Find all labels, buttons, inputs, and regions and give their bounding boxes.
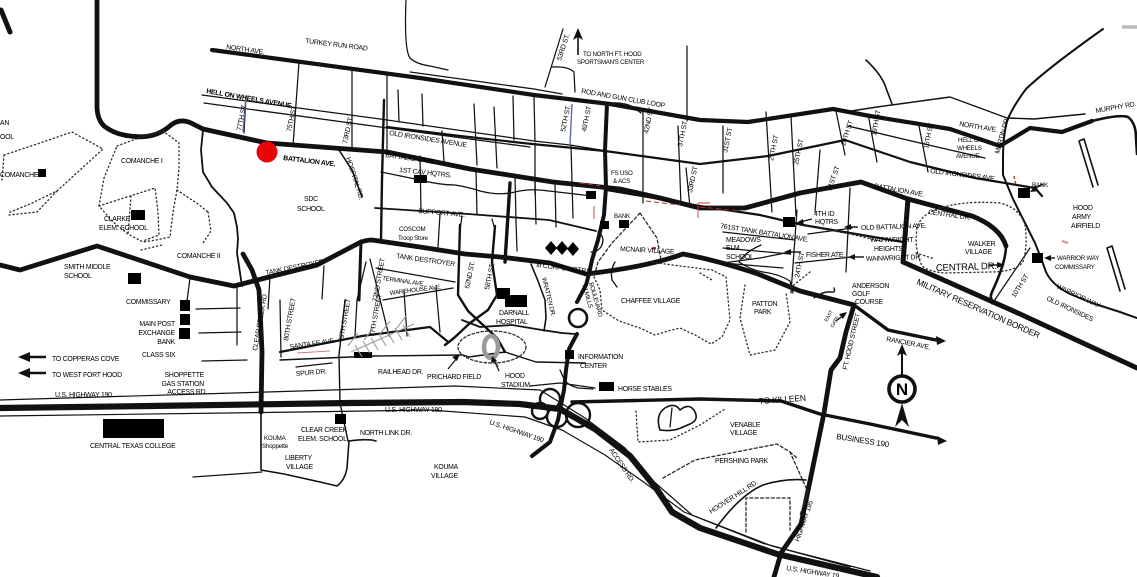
svg-text:DARNALL: DARNALL bbox=[499, 310, 529, 317]
svg-text:BANK: BANK bbox=[157, 339, 175, 346]
svg-text:SMITH MIDDLE: SMITH MIDDLE bbox=[64, 264, 111, 271]
svg-text:KOUMA: KOUMA bbox=[264, 435, 287, 442]
svg-text:MEADOWS: MEADOWS bbox=[726, 237, 761, 244]
svg-text:VILLAGE: VILLAGE bbox=[730, 430, 758, 437]
svg-text:COMMISSARY: COMMISSARY bbox=[1055, 264, 1095, 271]
svg-text:CLASS SIX: CLASS SIX bbox=[142, 352, 176, 359]
svg-text:BANK: BANK bbox=[614, 213, 631, 220]
svg-text:ELEM. SCHOOL: ELEM. SCHOOL bbox=[298, 436, 347, 443]
svg-text:FS USO: FS USO bbox=[611, 170, 633, 177]
svg-text:ARMY: ARMY bbox=[1072, 214, 1092, 221]
svg-text:HEIGHTS: HEIGHTS bbox=[874, 246, 904, 253]
svg-text:ELM.: ELM. bbox=[726, 245, 741, 252]
svg-text:4TH ID: 4TH ID bbox=[814, 211, 835, 218]
svg-text:SCHOOL: SCHOOL bbox=[64, 273, 92, 280]
svg-text:EXCHANGE: EXCHANGE bbox=[138, 330, 175, 337]
svg-text:CLEAR CREEK: CLEAR CREEK bbox=[301, 427, 348, 434]
svg-text:RAILHEAD DR.: RAILHEAD DR. bbox=[378, 369, 424, 376]
svg-text:SPORTSMAN'S CENTER: SPORTSMAN'S CENTER bbox=[577, 59, 645, 66]
svg-text:COURSE: COURSE bbox=[855, 299, 884, 306]
svg-text:CENTER: CENTER bbox=[580, 363, 607, 370]
svg-text:Shoppette: Shoppette bbox=[262, 443, 289, 450]
svg-text:HORSE STABLES: HORSE STABLES bbox=[618, 386, 672, 393]
svg-text:SHOPPETTE: SHOPPETTE bbox=[165, 372, 205, 379]
svg-text:WAINWRIGHT: WAINWRIGHT bbox=[870, 237, 914, 244]
svg-text:SCHOOL: SCHOOL bbox=[297, 206, 325, 213]
svg-text:OOL: OOL bbox=[0, 134, 14, 141]
svg-text:ACCESS RD.: ACCESS RD. bbox=[167, 389, 207, 396]
svg-text:LIBERTY: LIBERTY bbox=[285, 455, 312, 462]
svg-text:CHAFFEE VILLAGE: CHAFFEE VILLAGE bbox=[621, 298, 681, 305]
svg-text:HELL ON: HELL ON bbox=[958, 137, 983, 144]
svg-text:BANK: BANK bbox=[1032, 182, 1049, 189]
svg-text:STADIUM: STADIUM bbox=[501, 382, 530, 389]
svg-text:NORTH LINK DR.: NORTH LINK DR. bbox=[360, 430, 412, 437]
svg-text:WALKER: WALKER bbox=[968, 241, 996, 248]
svg-text:VILLAGE: VILLAGE bbox=[965, 249, 993, 256]
svg-text:& ACS: & ACS bbox=[613, 178, 630, 185]
svg-text:HQTRS: HQTRS bbox=[815, 219, 839, 226]
svg-text:HOOD: HOOD bbox=[505, 373, 525, 380]
svg-text:N: N bbox=[896, 380, 908, 399]
svg-text:PRICHARD FIELD: PRICHARD FIELD bbox=[427, 374, 481, 381]
svg-text:WARRIOR WAY: WARRIOR WAY bbox=[1057, 255, 1099, 262]
svg-text:AVENUE: AVENUE bbox=[956, 153, 980, 160]
svg-text:VILLAGE: VILLAGE bbox=[286, 464, 314, 471]
svg-text:COSCOM: COSCOM bbox=[399, 226, 425, 233]
svg-text:GOLF: GOLF bbox=[852, 291, 870, 298]
svg-text:HOOD: HOOD bbox=[1073, 205, 1093, 212]
svg-text:FISHER ATE.: FISHER ATE. bbox=[806, 252, 845, 259]
svg-text:TO WEST FORT HOOD: TO WEST FORT HOOD bbox=[52, 372, 122, 379]
svg-text:HOSPITAL: HOSPITAL bbox=[496, 319, 528, 326]
svg-text:INFORMATION: INFORMATION bbox=[578, 354, 623, 361]
svg-text:PATTON: PATTON bbox=[752, 301, 778, 308]
svg-text:AN: AN bbox=[0, 120, 9, 127]
svg-text:U.S. HIGHWAY 190: U.S. HIGHWAY 190 bbox=[55, 392, 112, 399]
svg-text:U.S. HIGHWAY 190: U.S. HIGHWAY 190 bbox=[385, 407, 442, 414]
svg-text:ANDERSON: ANDERSON bbox=[852, 283, 889, 290]
svg-text:TO COPPERAS COVE: TO COPPERAS COVE bbox=[52, 356, 120, 363]
svg-text:COMANCHE I: COMANCHE I bbox=[121, 158, 163, 165]
svg-text:Troop Store: Troop Store bbox=[398, 235, 429, 242]
svg-text:SDC: SDC bbox=[304, 196, 318, 203]
svg-text:GAS STATION: GAS STATION bbox=[161, 381, 204, 388]
svg-text:PERSHING PARK: PERSHING PARK bbox=[715, 458, 769, 465]
svg-text:WHEELS: WHEELS bbox=[957, 145, 982, 152]
svg-text:VENABLE: VENABLE bbox=[730, 422, 761, 429]
svg-text:CENTRAL TEXAS COLLEGE: CENTRAL TEXAS COLLEGE bbox=[90, 443, 176, 450]
svg-text:AIRFIELD: AIRFIELD bbox=[1071, 223, 1100, 230]
svg-text:COMANCHE: COMANCHE bbox=[0, 172, 39, 179]
svg-text:TO NORTH FT. HOOD: TO NORTH FT. HOOD bbox=[583, 51, 642, 58]
svg-text:CLARKE: CLARKE bbox=[104, 216, 131, 223]
svg-text:COMMISSARY: COMMISSARY bbox=[126, 299, 171, 306]
svg-text:KOUMA: KOUMA bbox=[434, 464, 459, 471]
svg-text:PARK: PARK bbox=[754, 309, 772, 316]
svg-text:COMANCHE II: COMANCHE II bbox=[177, 253, 221, 260]
svg-text:VILLAGE: VILLAGE bbox=[431, 473, 459, 480]
svg-text:ELEM. SCHOOL: ELEM. SCHOOL bbox=[99, 225, 148, 232]
svg-text:MAIN POST: MAIN POST bbox=[139, 321, 176, 328]
svg-text:CENTRAL DR.: CENTRAL DR. bbox=[936, 261, 997, 274]
svg-text:SCHOOL: SCHOOL bbox=[726, 254, 754, 261]
